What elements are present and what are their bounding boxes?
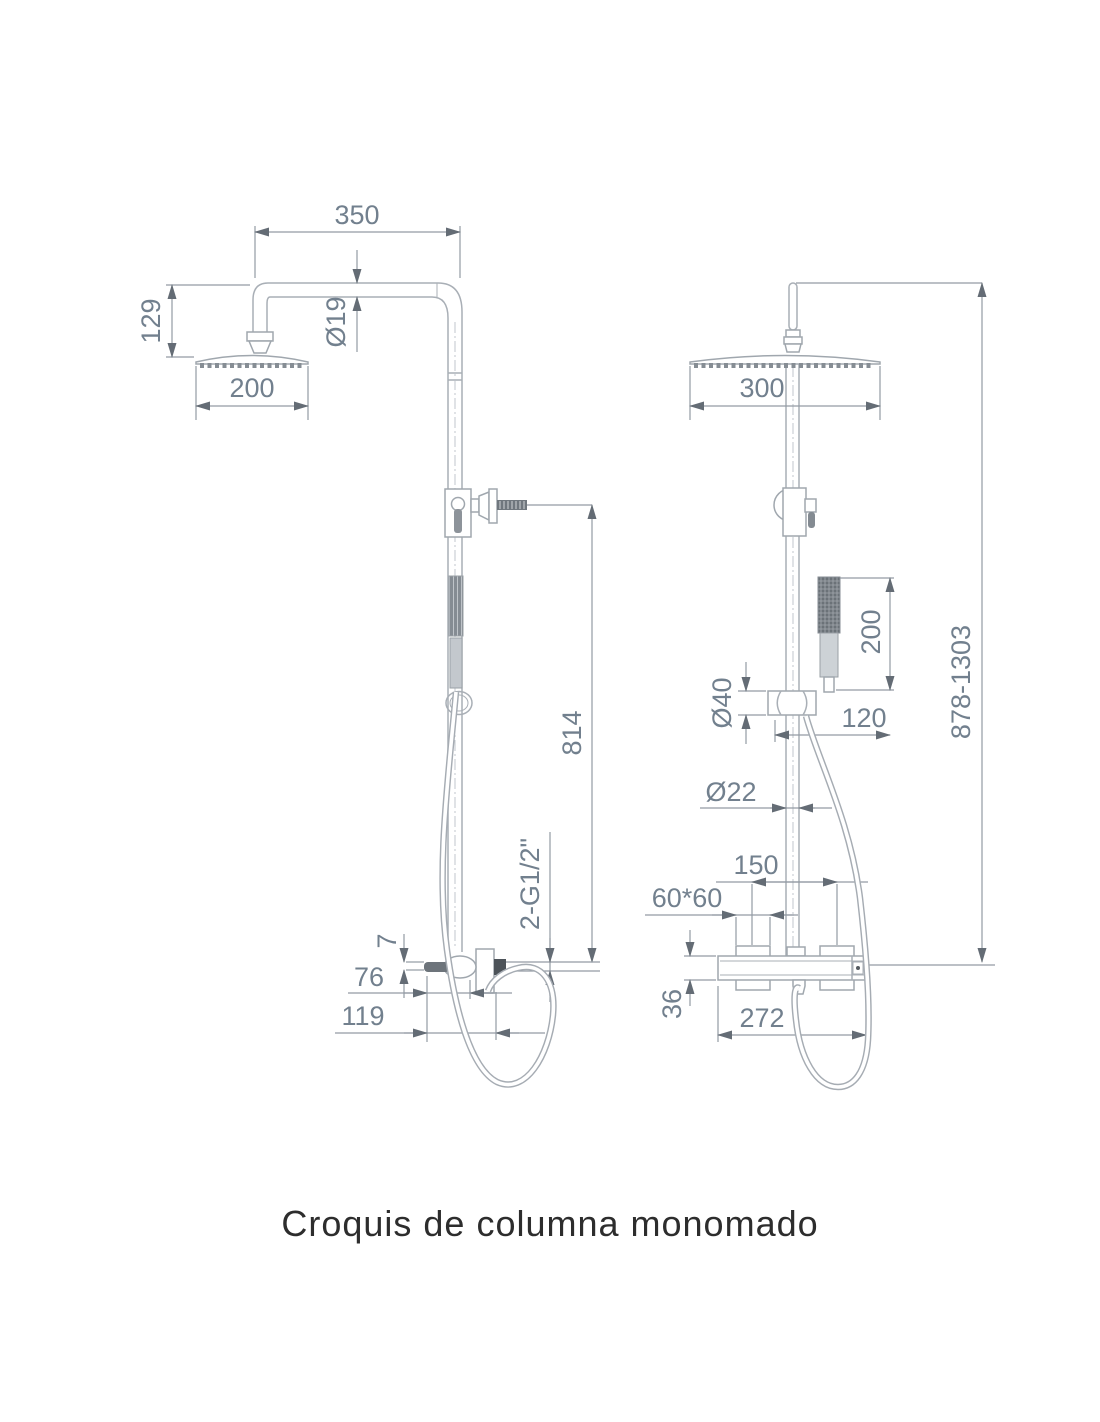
dim-column-pipe-diameter: Ø22	[700, 777, 832, 808]
dim-label-handshower-length: 200	[856, 609, 886, 654]
dim-label-head-offset: 129	[136, 298, 166, 343]
dim-head-width-right: 300	[690, 366, 880, 420]
dim-slide-bar-height: 814	[557, 505, 592, 962]
diverter-lever	[454, 509, 462, 533]
slide-diverter-front	[774, 488, 816, 536]
shower-hose-front	[795, 716, 869, 1087]
drawing-caption: Croquis de columna monomado	[281, 1203, 818, 1244]
diverter-knob	[808, 512, 815, 528]
dim-label-slide-bar-height: 814	[557, 710, 587, 755]
mixer-bar-front	[718, 946, 866, 994]
dim-total-height: 878-1303	[868, 283, 995, 965]
dim-mixer-body-height: 36	[657, 930, 716, 1019]
dim-holder-diameter: Ø40	[707, 662, 766, 744]
dim-label-handle-depth: 119	[341, 1001, 384, 1031]
dim-label-head-width-right: 300	[739, 373, 784, 403]
front-view: 350 129 200 Ø19	[136, 200, 600, 1084]
dim-label-arm-pipe-diameter: Ø19	[321, 296, 351, 347]
dim-label-inlet-spacing: 150	[733, 850, 778, 880]
drawing-page: 350 129 200 Ø19	[0, 0, 1100, 1422]
rain-head-side	[196, 332, 308, 368]
dim-label-plate-thickness: 7	[372, 933, 402, 948]
thread-ticks	[500, 501, 524, 509]
dim-label-head-width-left: 200	[229, 373, 274, 403]
slide-diverter-left	[445, 489, 592, 537]
dim-head-offset: 129	[136, 285, 250, 357]
dim-escutcheon-size: 60*60	[645, 883, 798, 945]
dim-head-width-left: 200	[196, 366, 308, 420]
rain-head-front	[690, 356, 880, 369]
dim-label-handshower-offset: 120	[841, 703, 886, 733]
dim-label-mixer-body-width: 272	[739, 1003, 784, 1033]
dim-label-mixer-body-height: 36	[657, 989, 687, 1019]
dim-arm-pipe-diameter: Ø19	[321, 250, 357, 352]
hand-shower-front	[818, 577, 840, 692]
dim-label-total-height: 878-1303	[946, 625, 976, 739]
shower-holder-front	[768, 691, 816, 715]
dim-label-holder-diameter: Ø40	[707, 677, 737, 728]
dim-inlet-spacing: 150	[716, 850, 868, 945]
dim-label-arm-projection: 350	[334, 200, 379, 230]
dim-label-escutcheon-size: 60*60	[652, 883, 723, 913]
dim-label-column-pipe-diameter: Ø22	[705, 777, 756, 807]
technical-drawing: 350 129 200 Ø19	[0, 0, 1100, 1422]
dim-label-inlet-thread: 2-G1/2"	[515, 838, 545, 930]
shower-arm-pipe	[253, 283, 462, 952]
side-view: 300 Ø40	[645, 283, 995, 1087]
dim-label-outlet-depth: 76	[354, 962, 384, 992]
dim-handshower-length: 200	[836, 578, 894, 690]
dim-handle-depth: 119	[335, 992, 545, 1040]
